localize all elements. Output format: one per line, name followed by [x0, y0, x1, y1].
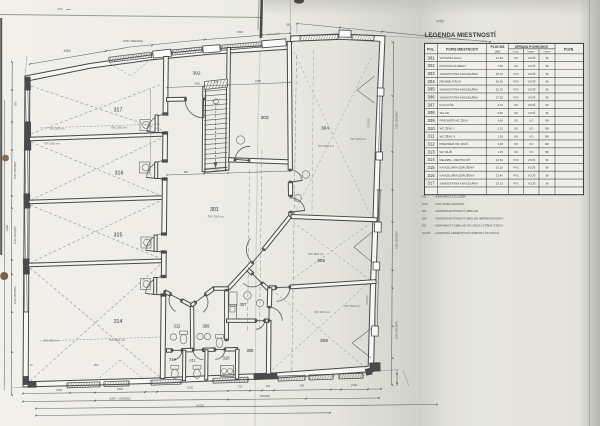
svg-text:2450: 2450: [194, 82, 200, 86]
svg-text:1600/900: 1600/900: [367, 294, 369, 304]
svg-text:1500-1500(900): 1500-1500(900): [14, 226, 17, 244]
svg-text:306: 306: [320, 338, 328, 344]
svg-text:POPIS MIESTNOSTI: POPIS MIESTNOSTI: [446, 48, 478, 52]
svg-text:KO: KO: [530, 150, 534, 154]
svg-text:SK: SK: [545, 72, 549, 76]
svg-text:314: 314: [427, 157, 435, 162]
svg-text:KD: KD: [514, 134, 518, 138]
svg-text:–SADROKARTÓNOVÝ OBKLAD: –SADROKARTÓNOVÝ OBKLAD: [434, 208, 479, 213]
svg-text:PVC: PVC: [513, 95, 519, 99]
svg-text:44,50: 44,50: [496, 56, 504, 60]
svg-text:SAMOSTATNÁ KANCELÁRIA: SAMOSTATNÁ KANCELÁRIA: [440, 87, 479, 91]
svg-text:ŠVK 1600 mm: ŠVK 1600 mm: [344, 305, 359, 308]
svg-text:311: 311: [427, 134, 435, 139]
svg-text:KO: KO: [530, 134, 534, 138]
svg-text:314: 314: [114, 319, 123, 325]
svg-text:POL.: POL.: [427, 48, 435, 52]
svg-text:–KERAMICKÁ DLAŽBA: –KERAMICKÁ DLAŽBA: [434, 194, 466, 199]
svg-text:PLOCHA: PLOCHA: [491, 45, 506, 49]
svg-text:PVC: PVC: [513, 87, 519, 91]
svg-text:3185: 3185: [255, 79, 261, 83]
svg-text:STROP: STROP: [543, 52, 551, 54]
svg-text:3400: 3400: [5, 224, 9, 231]
svg-text:18,70: 18,70: [496, 72, 504, 76]
svg-text:PVC: PVC: [513, 72, 519, 76]
svg-text:SK: SK: [545, 181, 549, 185]
svg-text:KD: KD: [514, 56, 518, 60]
svg-text:1,35: 1,35: [497, 150, 503, 154]
svg-text:315: 315: [427, 165, 435, 170]
svg-text:KANCELÁRIA ZDRUŽENÁ: KANCELÁRIA ZDRUŽENÁ: [440, 173, 475, 178]
svg-text:(1800 - 1500(900)): (1800 - 1500(900)): [109, 396, 131, 400]
svg-text:PODL.: PODL.: [513, 52, 520, 54]
svg-text:ŠVK 2500 mm: ŠVK 2500 mm: [111, 127, 127, 130]
svg-text:1,35: 1,35: [497, 134, 503, 138]
svg-text:1100: 1100: [213, 170, 219, 173]
svg-text:SK: SK: [545, 80, 549, 84]
svg-text:KD: KD: [514, 103, 518, 107]
svg-text:317: 317: [114, 108, 123, 114]
svg-text:SKI: SKI: [545, 142, 550, 146]
svg-text:316: 316: [115, 171, 124, 177]
svg-text:KO: KO: [530, 127, 534, 131]
svg-text:SK: SK: [545, 174, 549, 178]
svg-text:312: 312: [174, 324, 182, 329]
svg-text:VSTUPNÁ HALA: VSTUPNÁ HALA: [440, 56, 462, 60]
svg-text:4750: 4750: [436, 20, 443, 24]
svg-text:3,15: 3,15: [497, 127, 503, 131]
svg-text:–SADROKARTÓNOVÝ OBKLAD IMPREGN: –SADROKARTÓNOVÝ OBKLAD IMPREGNOVANÝ: [434, 215, 503, 220]
svg-text:1500-1500(900): 1500-1500(900): [396, 231, 399, 249]
svg-text:SK: SK: [545, 111, 549, 115]
svg-text:303: 303: [260, 115, 268, 121]
svg-text:LEGENDA MIESTNOSTÍ: LEGENDA MIESTNOSTÍ: [425, 31, 497, 39]
svg-text:750: 750: [238, 385, 243, 389]
svg-text:309: 309: [427, 118, 435, 123]
svg-text:312: 312: [427, 141, 435, 146]
svg-text:308: 308: [247, 348, 255, 353]
svg-text:4,60: 4,60: [497, 119, 503, 123]
svg-text:SKI: SKI: [422, 216, 427, 220]
svg-text:1500-1500(900): 1500-1500(900): [396, 111, 399, 129]
svg-text:5,80: 5,80: [497, 111, 503, 115]
svg-text:KUCHYŇA: KUCHYŇA: [440, 103, 454, 107]
svg-text:3450: 3450: [56, 388, 62, 392]
svg-text:23,10: 23,10: [496, 166, 504, 170]
svg-text:306: 306: [427, 94, 435, 99]
svg-text:ŠVK 2500 mm: ŠVK 2500 mm: [318, 145, 334, 148]
svg-text:STENY: STENY: [527, 52, 535, 54]
svg-text:ŠVK 2500 mm: ŠVK 2500 mm: [314, 311, 329, 314]
svg-text:1800: 1800: [117, 387, 123, 391]
svg-text:KO: KO: [422, 224, 427, 228]
svg-text:301: 301: [427, 55, 435, 60]
svg-text:316: 316: [427, 173, 435, 178]
svg-text:PVC: PVC: [513, 158, 519, 162]
svg-text:SAMOSTATNÁ KANCELÁRIA: SAMOSTATNÁ KANCELÁRIA: [440, 181, 479, 185]
svg-text:–VÁPENNÁ CEMENTOVÁ OMIETKA ŠTU: –VÁPENNÁ CEMENTOVÁ OMIETKA ŠTUKOVÁ: [434, 230, 499, 235]
svg-text:KD: KD: [514, 111, 518, 115]
svg-text:–KERAMICKÝ OBKLAD PO CELEJ VÝŠ: –KERAMICKÝ OBKLAD PO CELEJ VÝŠKE STENY: [434, 223, 503, 228]
svg-text:PVC: PVC: [513, 166, 519, 170]
svg-text:VCOŠ: VCOŠ: [422, 230, 431, 235]
svg-text:SKI: SKI: [545, 119, 550, 123]
svg-text:ŠVK 1800 mm: ŠVK 1800 mm: [44, 143, 59, 146]
svg-text:7,60: 7,60: [497, 64, 503, 68]
svg-text:SKI: SKI: [545, 127, 550, 131]
svg-text:KD: KD: [514, 150, 518, 154]
svg-text:313: 313: [169, 357, 176, 362]
svg-text:SKI: SKI: [545, 150, 550, 154]
svg-text:1500-1500(900): 1500-1500(900): [396, 321, 399, 339]
svg-text:PVC: PVC: [513, 80, 519, 84]
svg-text:ŠVK 1800 mm: ŠVK 1800 mm: [43, 340, 58, 343]
svg-text:1600/900: 1600/900: [369, 117, 371, 127]
svg-text:600: 600: [300, 384, 305, 388]
svg-text:1500-1500(900): 1500-1500(900): [14, 286, 17, 304]
svg-text:SK: SK: [545, 87, 549, 91]
svg-text:SKLAD: SKLAD: [440, 111, 449, 115]
svg-text:310: 310: [427, 126, 435, 131]
svg-text:REHABIL. MIESTNOSŤ: REHABIL. MIESTNOSŤ: [440, 157, 471, 162]
svg-text:PREDSIEŇ WC MUŽI: PREDSIEŇ WC MUŽI: [440, 141, 468, 146]
svg-text:305: 305: [427, 87, 435, 92]
svg-text:ŠVK 2500 mm: ŠVK 2500 mm: [109, 339, 125, 342]
svg-text:16700: 16700: [196, 404, 204, 408]
svg-text:500: 500: [14, 101, 18, 106]
svg-text:23,10: 23,10: [496, 181, 504, 185]
svg-text:ŠVK 1800 mm: ŠVK 1800 mm: [49, 128, 64, 131]
svg-text:900: 900: [266, 384, 271, 388]
svg-text:950: 950: [184, 171, 189, 174]
svg-text:POZN.: POZN.: [564, 48, 574, 52]
svg-text:304: 304: [321, 126, 329, 132]
svg-text:ŠVK 2500 mm: ŠVK 2500 mm: [308, 253, 323, 256]
svg-text:KD: KD: [514, 119, 518, 123]
svg-text:40,50: 40,50: [496, 158, 504, 162]
svg-text:KO: KO: [530, 142, 534, 146]
svg-text:301: 301: [210, 207, 219, 213]
svg-text:WC ŽENY II: WC ŽENY II: [440, 133, 456, 138]
svg-text:307: 307: [240, 302, 248, 307]
svg-text:22,70: 22,70: [496, 87, 504, 91]
svg-text:4,70: 4,70: [497, 103, 503, 107]
svg-text:311: 311: [189, 358, 196, 363]
svg-text:ŠVK 1600 mm: ŠVK 1600 mm: [350, 138, 365, 141]
svg-text:1500: 1500: [237, 30, 243, 34]
svg-text:309: 309: [203, 324, 211, 329]
svg-text:302: 302: [427, 63, 435, 68]
svg-text:SAMOSTATNÁ KANCELÁRIA: SAMOSTATNÁ KANCELÁRIA: [440, 95, 479, 99]
svg-text:600(900): 600(900): [260, 394, 271, 398]
svg-text:SK: SK: [545, 64, 549, 68]
svg-text:27,30: 27,30: [496, 95, 504, 99]
svg-text:KO: KO: [530, 119, 534, 123]
svg-text:307: 307: [427, 102, 435, 107]
svg-text:ÚPRAVA POVRCHOV: ÚPRAVA POVRCHOV: [515, 44, 549, 49]
svg-text:PVC: PVC: [513, 181, 519, 185]
svg-text:SAMOSTATNÁ KANCELÁRIA: SAMOSTATNÁ KANCELÁRIA: [440, 72, 479, 76]
svg-text:WC MUŽI: WC MUŽI: [440, 149, 453, 154]
svg-text:PVC: PVC: [422, 202, 429, 206]
svg-text:1800: 1800: [93, 365, 99, 367]
svg-text:KANCELÁRIA ZDRUŽENÁ: KANCELÁRIA ZDRUŽENÁ: [440, 165, 475, 170]
svg-text:SK: SK: [545, 95, 549, 99]
svg-text:303: 303: [427, 71, 435, 76]
svg-text:310: 310: [223, 356, 231, 361]
svg-text:45,30: 45,30: [496, 80, 504, 84]
svg-text:SK: SK: [545, 103, 549, 107]
svg-text:SKI: SKI: [545, 134, 550, 138]
svg-text:ROKOVACIA MIEST.: ROKOVACIA MIEST.: [440, 64, 467, 68]
svg-text:1500: 1500: [187, 386, 193, 390]
svg-text:KD: KD: [514, 64, 518, 68]
svg-text:302: 302: [192, 71, 200, 77]
svg-text:23,40: 23,40: [496, 174, 504, 178]
svg-text:313: 313: [427, 149, 435, 154]
svg-text:WC ŽENY I: WC ŽENY I: [440, 126, 455, 131]
svg-text:4450: 4450: [63, 49, 70, 53]
svg-text:317: 317: [427, 181, 435, 186]
svg-text:SK: SK: [545, 166, 549, 170]
svg-text:PVC: PVC: [513, 174, 519, 178]
svg-text:1500-1500(900): 1500-1500(900): [14, 161, 17, 179]
svg-text:KD: KD: [514, 127, 518, 131]
svg-text:SK: SK: [422, 209, 426, 213]
svg-text:2400: 2400: [351, 383, 357, 387]
svg-text:315: 315: [114, 233, 123, 239]
svg-text:(M2): (M2): [495, 50, 500, 54]
svg-text:775: 775: [214, 81, 219, 84]
svg-text:SK: SK: [545, 158, 549, 162]
svg-text:308: 308: [427, 110, 435, 115]
svg-text:305: 305: [317, 258, 325, 264]
svg-text:REHABILITÁCIA: REHABILITÁCIA: [440, 80, 462, 84]
svg-text:1500 (1500x900): 1500 (1500x900): [123, 39, 143, 43]
svg-text:304: 304: [427, 79, 435, 84]
svg-text:PREDSIEŇ WC ŽENY: PREDSIEŇ WC ŽENY: [440, 118, 469, 123]
svg-text:KD: KD: [514, 142, 518, 146]
svg-text:SK: SK: [545, 56, 549, 60]
svg-text:–PVC PODLAHOVINA: –PVC PODLAHOVINA: [434, 202, 464, 206]
svg-text:3,30: 3,30: [497, 142, 503, 146]
